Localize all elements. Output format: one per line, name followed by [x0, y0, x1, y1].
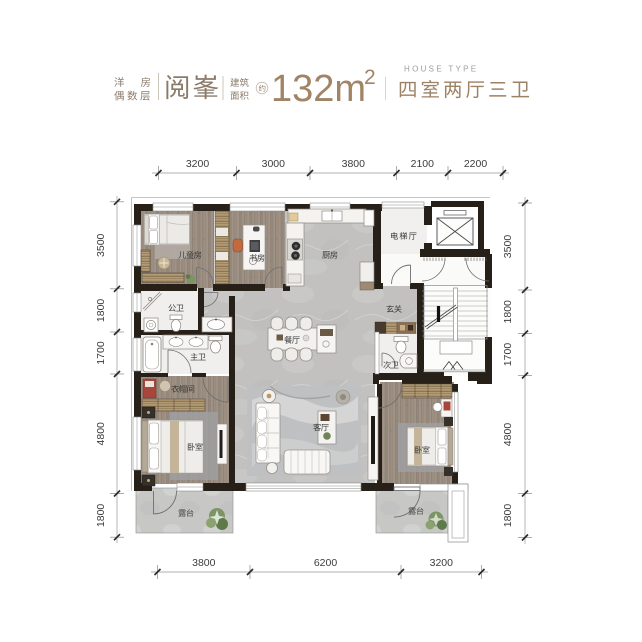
- svg-text:2: 2: [364, 66, 376, 89]
- svg-text:HOUSE TYPE: HOUSE TYPE: [404, 65, 478, 74]
- svg-text:3200: 3200: [430, 557, 454, 569]
- svg-text:1800: 1800: [502, 300, 514, 324]
- svg-text:6200: 6200: [314, 557, 338, 569]
- svg-text:1800: 1800: [95, 299, 107, 323]
- svg-text:1800: 1800: [95, 504, 107, 528]
- svg-text:3000: 3000: [262, 158, 286, 170]
- svg-text:1800: 1800: [502, 504, 514, 528]
- svg-text:3800: 3800: [342, 158, 366, 170]
- svg-text:132m: 132m: [271, 68, 366, 110]
- svg-text:2200: 2200: [464, 158, 488, 170]
- svg-text:2100: 2100: [411, 158, 435, 170]
- svg-text:4800: 4800: [95, 422, 107, 446]
- svg-text:1700: 1700: [95, 341, 107, 365]
- svg-text:3800: 3800: [192, 557, 216, 569]
- svg-text:3500: 3500: [502, 235, 514, 259]
- svg-text:3500: 3500: [95, 233, 107, 257]
- svg-text:1700: 1700: [502, 343, 514, 367]
- svg-text:4800: 4800: [502, 423, 514, 447]
- svg-text:3200: 3200: [186, 158, 210, 170]
